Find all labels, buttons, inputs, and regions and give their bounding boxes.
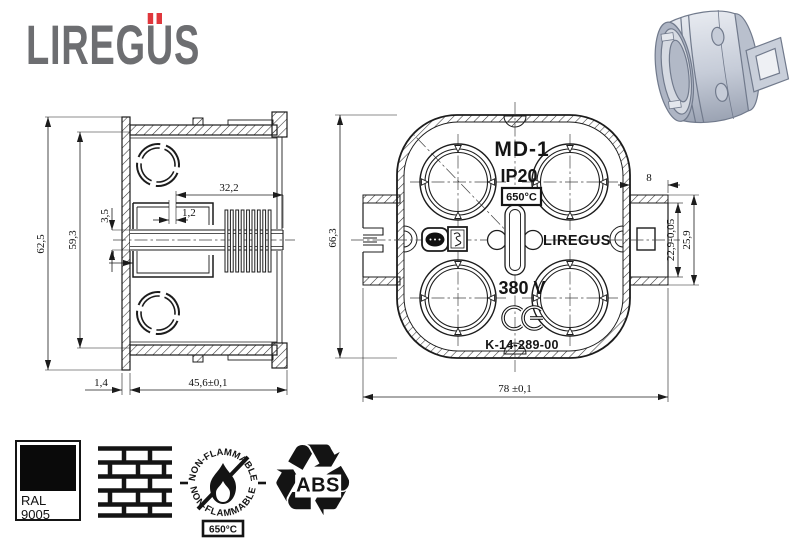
brand-molded-label: LIREGUS [543,233,611,249]
logo-text-2: S [174,13,200,76]
front-flange [122,117,130,370]
dim-flange: 1,4 [94,377,108,389]
dim-total-depth: 45,6±0,1 [188,377,227,389]
datasheet-page: LIREGUS [0,0,795,539]
dim-channel-height: 3,5 [99,209,111,223]
ral-code: 9005 [21,508,79,522]
umlaut-dot-icon [157,13,162,24]
dim-tab-inner: 22,9-0,05 [665,218,677,261]
abs-recycling-badge: ♻ ABS [268,442,368,532]
certification-marks [422,227,467,251]
dim-slot-width: 1,2 [182,207,196,219]
ip-rating-label: IP20 [500,166,537,186]
model-label: MD-1 [494,138,549,161]
side-view-drawing: 62,5 59,3 3,5 1,2 32,2 1 1,4 45,6± [25,92,320,407]
voltage-label: 380 V [498,278,545,298]
non-flammable-badge: NON-FLAMMABLE NON-FLAMMABLE 650°C [180,441,266,538]
ral-9005-badge: RAL 9005 [15,440,81,521]
ral-label: RAL [21,494,79,508]
front-view-drawing: MD-1 IP20 650°C LIREGUS 380 V K-14-289-0… [325,92,705,417]
ral-color-swatch [20,445,76,491]
part-number-label: K-14-289-00 [485,338,558,352]
dim-wall: 1 [110,249,116,261]
dim-inner-height: 59,3 [67,230,79,250]
logo-text-1: LIREG [26,13,146,76]
abs-material-label: ABS [295,475,341,498]
bottom-wall [130,345,277,355]
knockout-section-bottom [131,286,186,341]
logo-letter-u: U [146,12,174,77]
strain-relief-comb [225,210,271,272]
dim-inner-depth: 32,2 [219,182,238,194]
dim-tab-width: 8 [646,172,652,184]
dim-width: 78 ±0,1 [498,383,532,395]
temp-rating-label: 650°C [506,192,537,204]
dim-outer-height: 62,5 [35,234,47,254]
dim-height: 66,3 [327,228,339,248]
umlaut-dot-icon [148,13,153,24]
non-flammable-temp: 650°C [209,525,237,536]
knockout-section-top [131,138,186,193]
dim-tab-outer: 25,9 [681,230,693,250]
flame-icon [210,463,236,504]
brick-wall-icon [98,446,172,518]
top-wall [130,125,277,135]
liregus-logo: LIREGUS [26,12,200,77]
